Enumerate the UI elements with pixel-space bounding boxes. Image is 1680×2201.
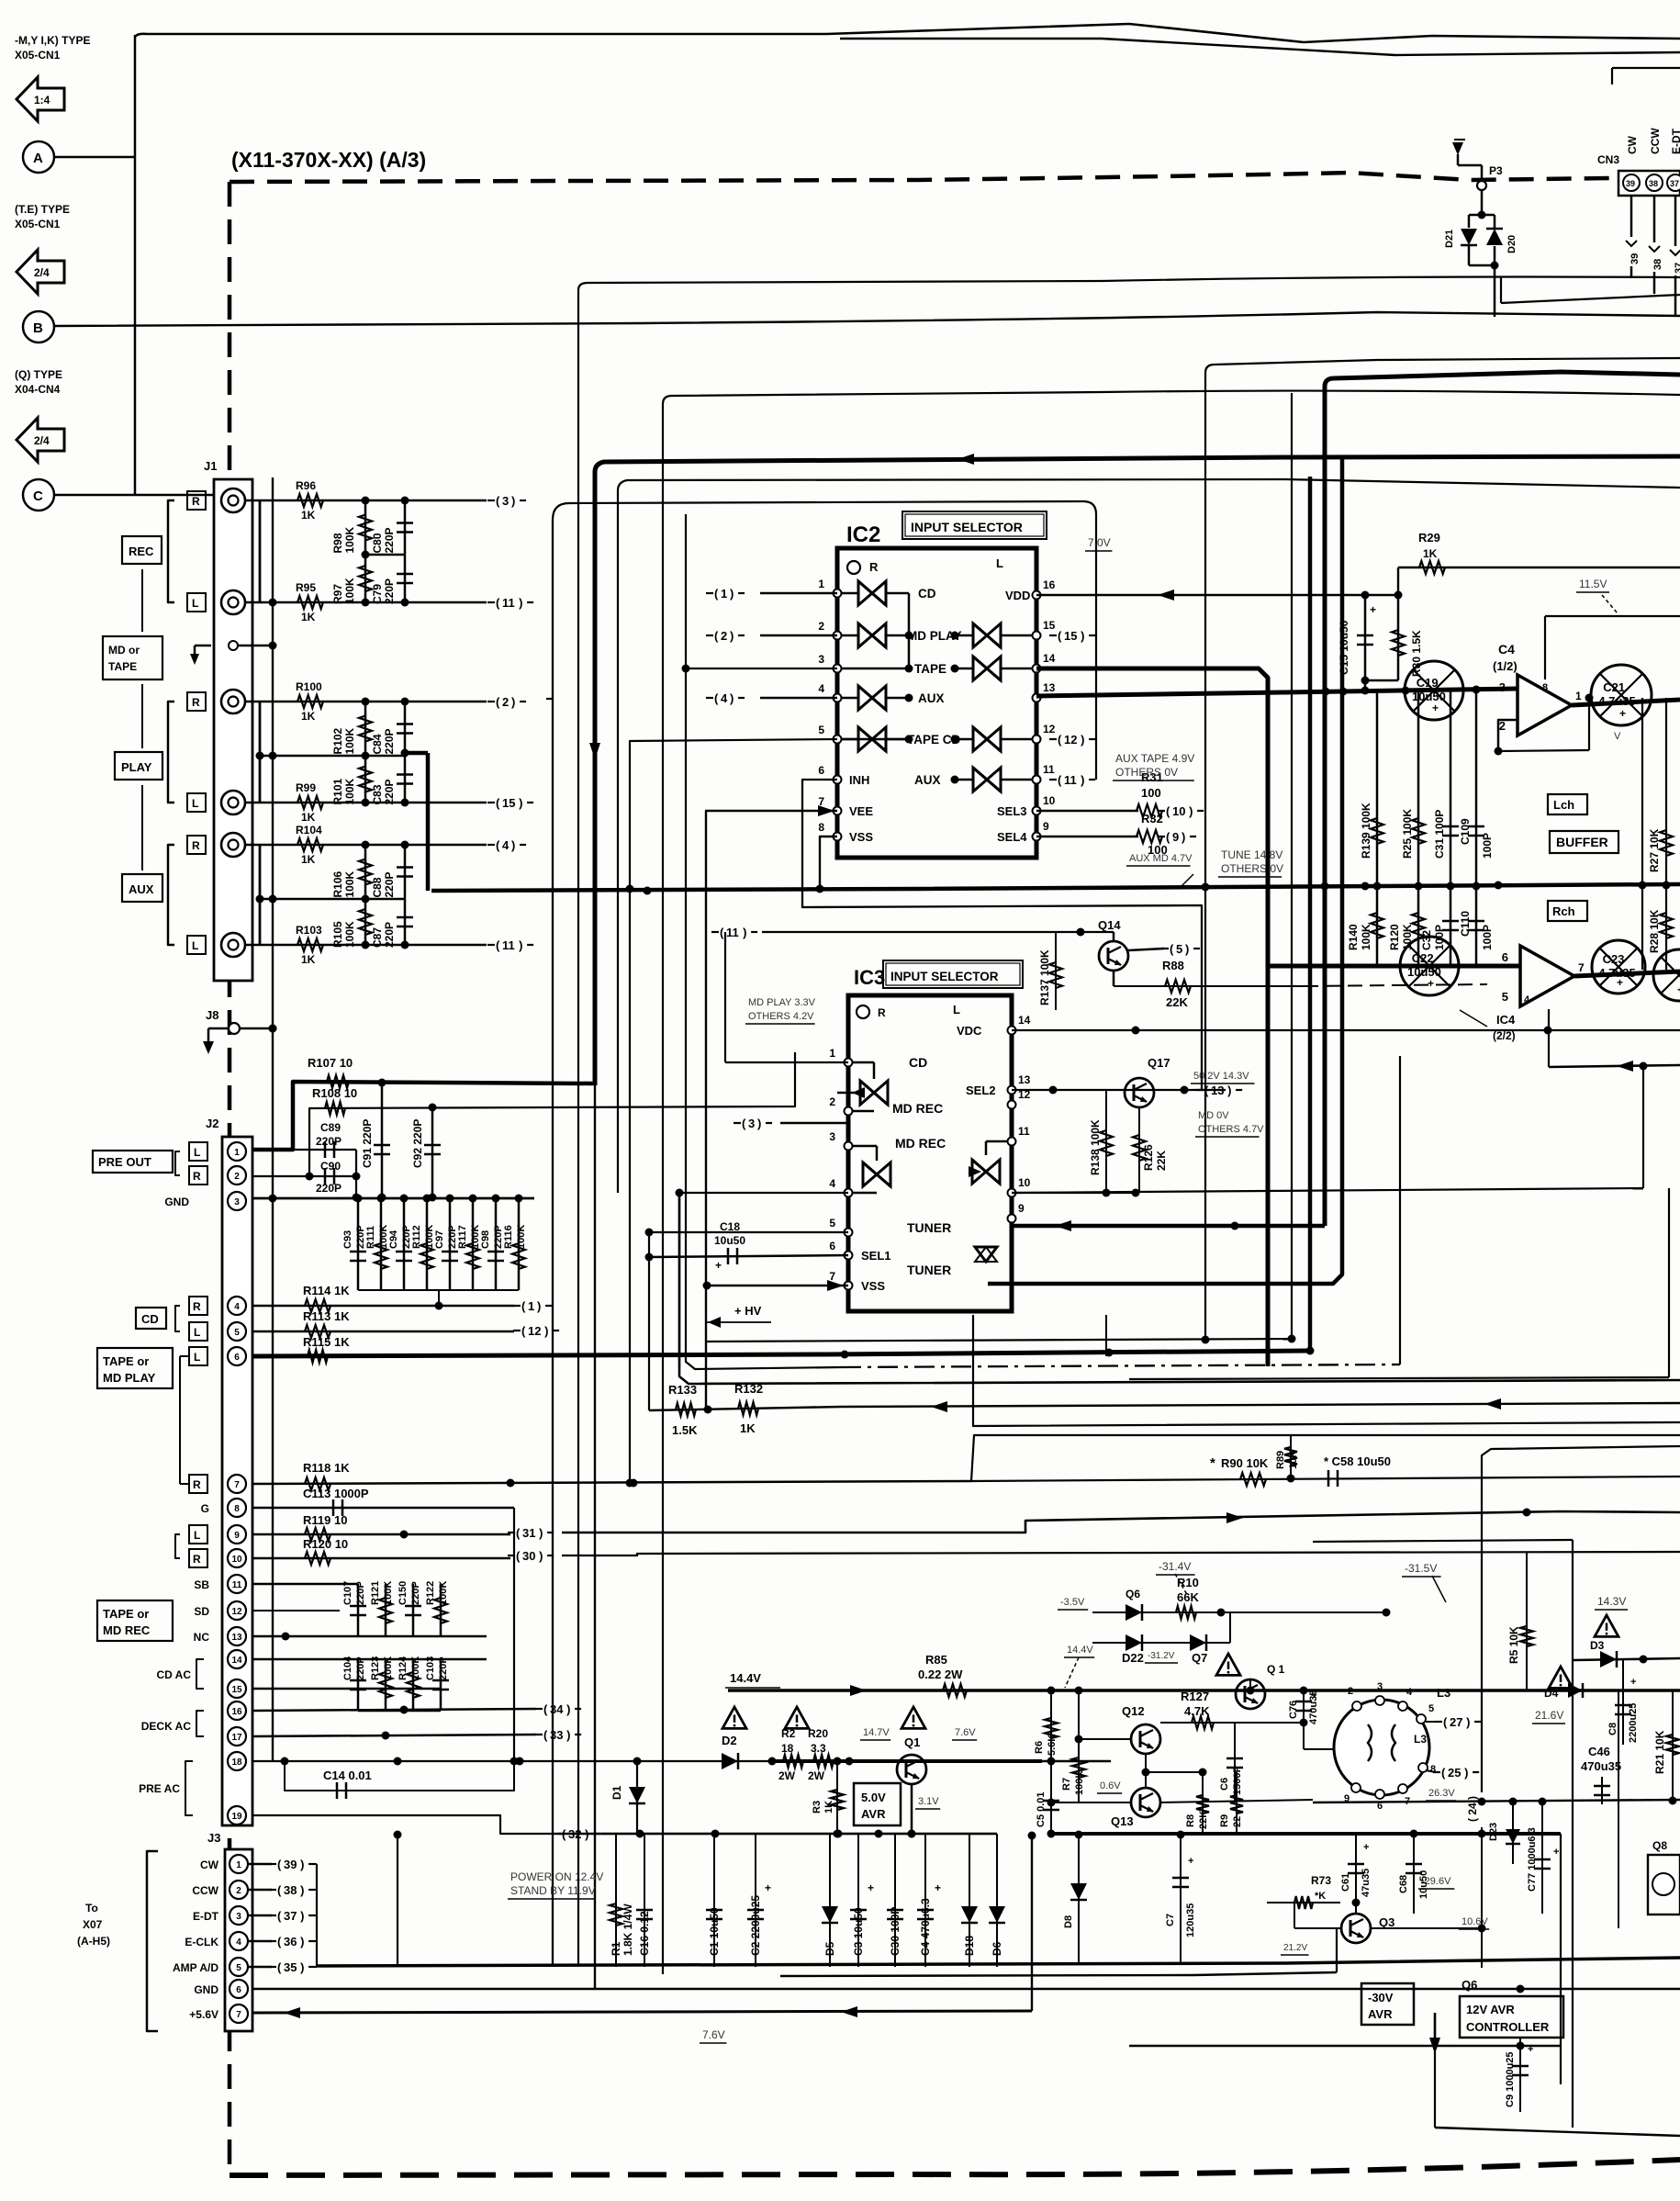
svg-text:D5: D5 [823,1941,836,1956]
svg-text:): ) [1081,629,1084,643]
svg-text:D18: D18 [963,1936,976,1956]
svg-text:7.6V: 7.6V [955,1727,976,1738]
svg-text:TUNE 14.8V: TUNE 14.8V [1221,848,1282,861]
svg-text:2: 2 [829,1095,835,1108]
svg-text:CD: CD [918,587,936,601]
svg-text:C19: C19 [1417,676,1439,690]
svg-text:AUX: AUX [914,773,941,787]
svg-text:(: ( [496,494,500,508]
svg-text:Q7: Q7 [1192,1651,1207,1665]
svg-text:21.6V: 21.6V [1535,1709,1563,1722]
svg-text:12: 12 [1043,723,1056,736]
svg-text:R90 10K: R90 10K [1221,1456,1269,1470]
svg-text:R113 1K: R113 1K [303,1309,350,1323]
svg-text:3.3: 3.3 [811,1742,826,1755]
svg-text:3: 3 [1377,1681,1383,1692]
svg-text:38: 38 [284,1883,297,1897]
svg-text:2: 2 [236,1886,241,1896]
svg-text:(: ( [714,587,719,601]
svg-text:D1: D1 [610,1785,623,1800]
svg-text:220P: 220P [410,1581,421,1605]
svg-text:(: ( [1058,773,1062,787]
svg-text:4: 4 [236,1937,241,1948]
svg-text:PLAY: PLAY [121,760,152,774]
svg-text:L3: L3 [1437,1686,1450,1700]
svg-text:1: 1 [236,1860,241,1870]
svg-text:OTHERS 0V: OTHERS 0V [1115,766,1178,779]
svg-text:39: 39 [1630,253,1641,264]
svg-text:): ) [300,1858,304,1871]
svg-text:1: 1 [1575,690,1582,702]
svg-text:R8: R8 [1185,1814,1196,1827]
svg-text:0.6V: 0.6V [1100,1780,1121,1791]
svg-text:C9 1000u25: C9 1000u25 [1505,2051,1516,2107]
svg-text:22K: 22K [1155,1151,1168,1171]
svg-text:C113 1000P: C113 1000P [303,1487,369,1500]
svg-text:R: R [192,839,200,852]
svg-text:): ) [519,938,522,952]
svg-text:TAPE or: TAPE or [103,1354,149,1368]
svg-text:(: ( [720,926,724,939]
svg-text:3.1V: 3.1V [918,1796,939,1807]
svg-text:(: ( [714,629,719,643]
svg-text:VDD: VDD [1005,589,1030,602]
svg-text:C6: C6 [1219,1778,1230,1791]
svg-text:): ) [730,629,734,643]
svg-text:X05-CN1: X05-CN1 [15,218,61,230]
svg-text:5: 5 [1428,1703,1434,1714]
svg-text:-M,Y I,K) TYPE: -M,Y I,K) TYPE [15,34,90,47]
svg-text:AVR: AVR [861,1807,886,1821]
svg-text:100K: 100K [383,1581,394,1605]
svg-text:R120 10: R120 10 [303,1537,348,1551]
svg-text:14.4V: 14.4V [1067,1645,1093,1656]
svg-text:C61: C61 [1340,1873,1351,1892]
svg-text:3: 3 [829,1130,835,1143]
svg-text:R122: R122 [425,1581,436,1605]
svg-text:E-DT: E-DT [193,1910,219,1923]
svg-text:D22: D22 [1122,1651,1144,1665]
svg-text:(: ( [1441,1766,1446,1780]
svg-text:MD 0V: MD 0V [1198,1110,1229,1121]
svg-text:): ) [511,494,515,508]
svg-text:MD PLAY: MD PLAY [103,1371,156,1385]
svg-text:11: 11 [1064,773,1077,787]
svg-text:100K: 100K [516,1225,527,1249]
svg-text:C14 0.01: C14 0.01 [323,1769,372,1782]
svg-text:CW: CW [200,1858,219,1871]
svg-text:8: 8 [1542,682,1548,693]
svg-text:+: + [1370,603,1376,616]
svg-text:(: ( [1058,733,1062,747]
svg-text:120u35: 120u35 [1185,1903,1196,1937]
svg-text:1K: 1K [301,509,316,522]
svg-text:X05-CN1: X05-CN1 [15,49,61,62]
svg-text:L3: L3 [1414,1733,1427,1746]
svg-text:C76: C76 [1288,1701,1299,1719]
svg-text:(: ( [496,796,500,810]
svg-text:C91 220P: C91 220P [361,1119,374,1168]
svg-text:R111: R111 [365,1226,376,1249]
svg-text:D21: D21 [1444,230,1455,248]
svg-text:4.7u35: 4.7u35 [1598,694,1635,708]
svg-text:L: L [194,1351,200,1364]
svg-text:Q12: Q12 [1122,1704,1145,1718]
svg-text:9: 9 [1043,820,1049,833]
svg-text:C3 10u50: C3 10u50 [852,1907,865,1956]
svg-text:C98: C98 [480,1230,491,1249]
svg-text:AMP A/D: AMP A/D [173,1961,218,1974]
svg-text:37: 37 [284,1909,297,1923]
svg-text:R10: R10 [1177,1576,1199,1589]
svg-text:47u35: 47u35 [1361,1869,1372,1897]
svg-text:MD REC: MD REC [895,1136,946,1151]
svg-text:G: G [201,1502,209,1515]
svg-text:R121: R121 [370,1581,381,1605]
svg-text:+: + [1363,1842,1369,1853]
svg-text:C8: C8 [1607,1723,1618,1735]
svg-text:30: 30 [522,1549,535,1563]
svg-text:220P: 220P [383,578,396,604]
svg-text:R9: R9 [1219,1814,1230,1827]
svg-text:R: R [193,1553,201,1566]
svg-text:36: 36 [284,1935,297,1948]
svg-text:+: + [1553,1847,1559,1858]
svg-text:220P: 220P [316,1182,342,1195]
svg-text:10: 10 [231,1555,242,1565]
svg-text:1.8K 1/4W: 1.8K 1/4W [622,1903,634,1956]
svg-text:IC3: IC3 [854,966,885,989]
svg-text:MD PLAY 3.3V: MD PLAY 3.3V [748,997,816,1008]
svg-text:R119 10: R119 10 [303,1513,347,1527]
svg-text:TUNER: TUNER [907,1220,951,1235]
svg-text:C68: C68 [1398,1875,1409,1893]
svg-text:1:4: 1:4 [34,94,50,107]
svg-text:C31 100P: C31 100P [1433,810,1446,859]
svg-text:4.7K: 4.7K [1184,1704,1210,1718]
svg-text:220P: 220P [383,527,396,553]
svg-text:): ) [539,1526,543,1540]
svg-text:18: 18 [781,1742,794,1755]
svg-text:1: 1 [818,578,824,590]
svg-text:14: 14 [1018,1014,1031,1027]
svg-text:6: 6 [829,1240,835,1252]
svg-text:R114 1K: R114 1K [303,1284,350,1297]
svg-text:5: 5 [1502,990,1508,1004]
svg-text:1K: 1K [301,953,316,966]
svg-text:): ) [1185,942,1189,956]
svg-text:+: + [765,1881,771,1894]
svg-text:4: 4 [829,1177,835,1190]
svg-text:(: ( [496,938,500,952]
svg-text:AUX TAPE 4.9V: AUX TAPE 4.9V [1115,752,1194,765]
svg-text:17: 17 [231,1733,242,1743]
svg-text:100K: 100K [343,778,356,804]
svg-text:R139 100K: R139 100K [1360,803,1372,859]
svg-text:R21 10K: R21 10K [1653,1730,1666,1774]
svg-text:E-DT: E-DT [1670,128,1680,154]
svg-text:OTHERS 0V: OTHERS 0V [1221,862,1283,875]
svg-text:(: ( [277,1960,282,1974]
svg-text:5: 5 [829,1217,835,1230]
svg-text:): ) [1227,1084,1231,1097]
svg-text:220P: 220P [316,1135,342,1148]
svg-text:R98: R98 [331,533,344,553]
svg-text:D23: D23 [1488,1823,1499,1841]
svg-text:6: 6 [1502,950,1508,964]
svg-text:MD REC: MD REC [892,1101,943,1116]
svg-text:): ) [566,1728,570,1742]
svg-text:(: ( [742,1117,746,1130]
svg-text:): ) [730,587,734,601]
svg-text:SD: SD [194,1605,209,1618]
svg-text:22K: 22K [1166,995,1188,1009]
svg-text:7.6V: 7.6V [702,2028,725,2041]
svg-text:5: 5 [236,1963,241,1973]
svg-text:C5 0.01: C5 0.01 [1036,1791,1047,1827]
svg-text:): ) [1081,733,1084,747]
svg-text:1K: 1K [823,1801,834,1814]
svg-text:Q1: Q1 [904,1735,920,1749]
svg-text:C23: C23 [1603,952,1625,966]
svg-text:R140: R140 [1347,924,1360,950]
svg-text:3: 3 [234,1197,240,1207]
svg-text:+: + [868,1881,874,1894]
svg-text:C16 0.12: C16 0.12 [638,1911,651,1956]
svg-text:VDC: VDC [957,1024,982,1038]
svg-text:MD or: MD or [108,644,140,657]
svg-text:R: R [193,1170,201,1183]
svg-text:(: ( [1166,804,1170,818]
svg-text:DECK AC: DECK AC [141,1720,192,1733]
svg-text:TAPE or: TAPE or [103,1607,149,1621]
svg-text:E-CLK: E-CLK [185,1936,218,1948]
svg-text:( 24 ): ( 24 ) [1466,1796,1479,1822]
svg-text:INH: INH [849,773,869,787]
svg-text:Q 1: Q 1 [1267,1663,1285,1676]
svg-text:12: 12 [528,1324,541,1338]
svg-text:SEL1: SEL1 [861,1249,891,1263]
svg-text:2: 2 [818,620,824,633]
svg-text:(: ( [496,596,500,610]
svg-text:10.6V: 10.6V [1462,1916,1488,1927]
svg-text:(: ( [543,1728,548,1742]
svg-text:): ) [1182,830,1185,844]
svg-text:7: 7 [234,1480,240,1490]
svg-text:2/4: 2/4 [34,434,50,447]
svg-text:TAPE: TAPE [108,660,137,673]
svg-text:BUFFER: BUFFER [1556,835,1608,849]
svg-text:): ) [743,926,746,939]
svg-text:0.22 2W: 0.22 2W [918,1668,963,1681]
svg-text:R112: R112 [411,1225,422,1249]
svg-text:19: 19 [231,1812,242,1822]
svg-text:13: 13 [231,1633,242,1643]
svg-text:D20: D20 [1506,235,1518,253]
svg-text:R100: R100 [296,680,322,693]
svg-text:R102: R102 [331,727,344,754]
svg-text:-29.6V: -29.6V [1421,1876,1451,1887]
svg-text:): ) [566,1702,570,1716]
svg-text:13: 13 [1211,1084,1224,1097]
svg-text:R103: R103 [296,924,322,937]
svg-text:1: 1 [829,1047,835,1060]
svg-text:3: 3 [818,653,824,666]
svg-text:D3: D3 [1590,1639,1605,1652]
svg-text:2W: 2W [808,1769,825,1782]
svg-text:100K: 100K [343,870,356,897]
svg-text:(Q) TYPE: (Q) TYPE [15,368,62,381]
svg-text:R20: R20 [808,1727,828,1740]
svg-text:15: 15 [1043,619,1056,632]
svg-text:C1 10u50: C1 10u50 [708,1907,721,1956]
svg-text:100P: 100P [1481,833,1494,859]
svg-text:VEE: VEE [849,804,873,818]
svg-text:): ) [539,1549,543,1563]
svg-text:4: 4 [721,691,728,705]
svg-text:11: 11 [726,926,739,939]
svg-text:11: 11 [502,596,515,610]
svg-text:INPUT SELECTOR: INPUT SELECTOR [911,520,1023,534]
svg-text:C89: C89 [320,1121,341,1134]
svg-text:R25 100K: R25 100K [1401,809,1414,859]
svg-text:C92 220P: C92 220P [411,1119,424,1168]
svg-text:C80: C80 [371,533,384,553]
svg-text:(: ( [1058,629,1062,643]
svg-text:): ) [511,838,515,852]
svg-text:9: 9 [234,1531,240,1541]
svg-text:(X11-370X-XX) (A/3): (X11-370X-XX) (A/3) [231,148,426,172]
svg-text:C83: C83 [371,784,384,804]
svg-text:R101: R101 [331,778,344,804]
svg-text:(A-H5): (A-H5) [77,1935,110,1948]
svg-text:12: 12 [231,1607,242,1617]
svg-text:R126: R126 [1142,1144,1155,1171]
svg-text:-31.4V: -31.4V [1159,1560,1191,1573]
svg-text:100K: 100K [1074,1771,1085,1795]
svg-text:C46: C46 [1588,1745,1610,1758]
svg-text:GND: GND [194,1983,218,1996]
svg-text:R95: R95 [296,581,316,594]
svg-text:VSS: VSS [849,830,873,844]
svg-text:R: R [869,560,879,574]
svg-text:R88: R88 [1162,959,1184,972]
svg-text:33: 33 [550,1728,563,1742]
svg-text:D4: D4 [1544,1687,1559,1700]
svg-text:R28 10K: R28 10K [1648,909,1661,953]
svg-text:9: 9 [1172,830,1179,844]
svg-text:5: 5 [1176,942,1182,956]
svg-text:R118 1K: R118 1K [303,1461,350,1475]
svg-text:L: L [953,1003,960,1016]
svg-text:4: 4 [818,682,824,695]
svg-text:J2: J2 [206,1117,218,1130]
svg-text:6: 6 [818,764,824,777]
svg-text:14.3V: 14.3V [1597,1595,1626,1608]
svg-text:1K: 1K [301,611,316,623]
svg-text:B: B [33,320,43,336]
svg-text:11.5V: 11.5V [1579,578,1607,590]
svg-text:*: * [1210,1455,1215,1471]
svg-text:): ) [300,1960,304,1974]
svg-text:R29: R29 [1418,531,1440,545]
svg-text:C4 470u6.3: C4 470u6.3 [919,1898,932,1956]
svg-text:(: ( [521,1324,526,1338]
svg-text:C150: C150 [398,1581,409,1605]
svg-text:5.0V: 5.0V [861,1791,886,1804]
svg-text:STAND BY 11.9V: STAND BY 11.9V [510,1884,596,1897]
svg-text:(: ( [543,1702,548,1716]
svg-text:R89: R89 [1275,1451,1286,1469]
svg-text:25: 25 [1448,1766,1461,1780]
svg-text:CCW: CCW [192,1884,218,1897]
svg-text:11: 11 [1043,763,1055,776]
svg-text:L: L [192,797,198,810]
svg-text:1K: 1K [301,811,316,824]
svg-text:AUX: AUX [918,691,945,705]
svg-text:8: 8 [818,821,824,834]
svg-text:R32: R32 [1141,812,1163,825]
svg-text:REC: REC [129,545,154,558]
svg-text:J8: J8 [206,1008,218,1022]
svg-text:R133: R133 [668,1383,697,1397]
svg-text:10u50: 10u50 [1407,965,1441,979]
svg-text:R116: R116 [503,1225,514,1249]
svg-text:4: 4 [234,1302,240,1312]
svg-text:C30 100P: C30 100P [889,1907,902,1956]
svg-text:R105: R105 [331,921,344,948]
svg-text:37: 37 [1674,263,1680,274]
svg-text:C21: C21 [1603,680,1625,694]
svg-text:R104: R104 [296,824,322,837]
svg-text:GND: GND [164,1196,189,1208]
svg-text:CW: CW [1626,135,1639,154]
svg-text:INPUT SELECTOR: INPUT SELECTOR [890,970,999,983]
svg-text:15: 15 [502,796,515,810]
svg-text:2W: 2W [778,1769,796,1782]
svg-text:C32: C32 [1420,930,1433,950]
svg-text:SB: SB [194,1578,209,1591]
svg-text:R106: R106 [331,870,344,897]
svg-text:R1: R1 [610,1941,622,1956]
svg-text:34: 34 [550,1702,564,1716]
svg-text:35: 35 [284,1960,297,1974]
svg-text:): ) [519,596,522,610]
svg-text:R: R [193,1478,201,1491]
svg-text:26.3V: 26.3V [1428,1788,1455,1799]
svg-text:8: 8 [1430,1764,1436,1775]
svg-text:MD REC: MD REC [103,1623,151,1637]
svg-text:2: 2 [1348,1686,1353,1697]
svg-text:R2: R2 [781,1727,796,1740]
svg-text:4: 4 [502,838,510,852]
svg-text:8: 8 [234,1504,240,1514]
svg-text:1K: 1K [740,1421,756,1435]
svg-text:14.7V: 14.7V [863,1727,890,1738]
svg-text:C88: C88 [371,877,384,897]
svg-text:): ) [537,1299,541,1313]
svg-text:C77 1000u6.3: C77 1000u6.3 [1527,1827,1538,1892]
svg-text:L: L [194,1146,200,1159]
svg-text:V: V [1614,731,1621,742]
svg-text:Q17: Q17 [1148,1056,1170,1070]
svg-text:R5 10K: R5 10K [1507,1626,1520,1664]
svg-text:100K: 100K [343,578,356,604]
svg-text:(: ( [496,838,500,852]
svg-text:X07: X07 [83,1918,103,1931]
svg-text:6: 6 [236,1985,241,1995]
svg-text:(: ( [714,691,719,705]
